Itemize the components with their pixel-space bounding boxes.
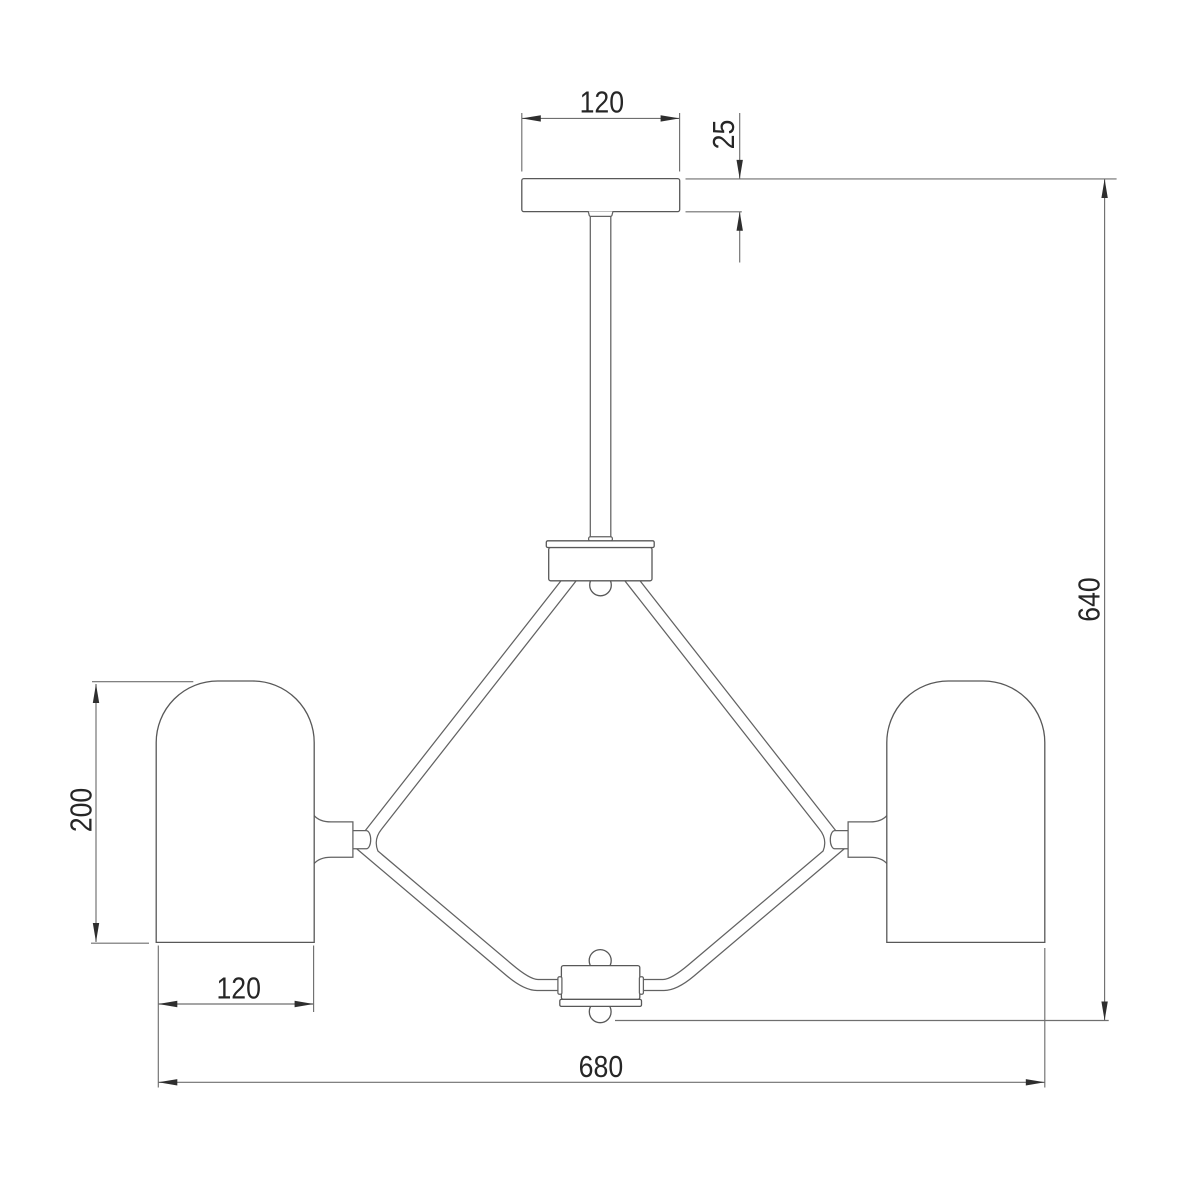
svg-text:120: 120: [580, 86, 624, 120]
svg-text:640: 640: [1072, 577, 1106, 621]
svg-text:25: 25: [707, 120, 741, 150]
svg-text:200: 200: [65, 788, 99, 832]
svg-text:680: 680: [579, 1050, 623, 1084]
svg-text:120: 120: [216, 972, 260, 1006]
